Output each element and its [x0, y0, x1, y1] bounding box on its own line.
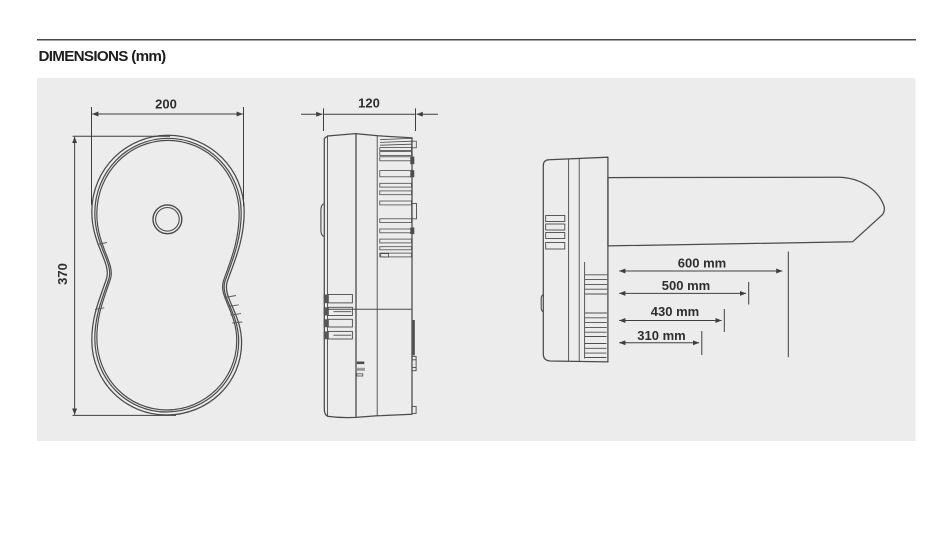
svg-text:120: 120: [358, 96, 380, 111]
svg-text:600 mm: 600 mm: [678, 255, 726, 270]
svg-text:200: 200: [155, 96, 177, 111]
svg-text:DIMENSIONS (mm): DIMENSIONS (mm): [39, 48, 167, 65]
svg-text:310 mm: 310 mm: [637, 328, 685, 343]
svg-text:370: 370: [55, 263, 70, 285]
svg-text:500 mm: 500 mm: [662, 278, 710, 293]
svg-text:430 mm: 430 mm: [651, 304, 699, 319]
